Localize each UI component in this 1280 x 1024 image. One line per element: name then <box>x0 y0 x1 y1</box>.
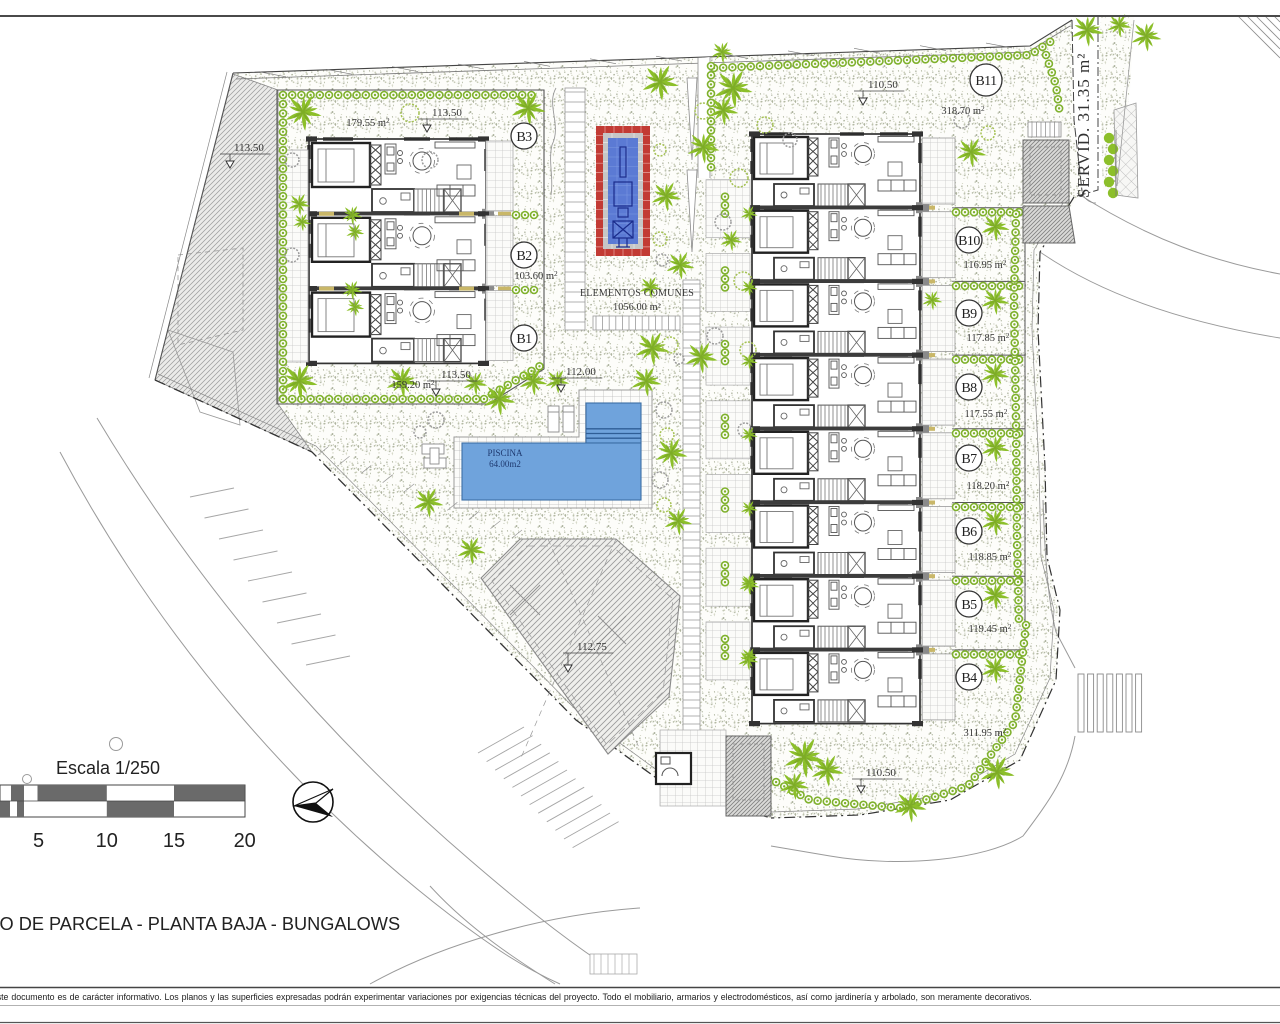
svg-text:B8: B8 <box>961 381 977 396</box>
svg-text:20: 20 <box>234 830 256 852</box>
svg-text:B7: B7 <box>961 452 977 467</box>
svg-text:B11: B11 <box>975 74 997 89</box>
svg-text:B2: B2 <box>516 249 532 264</box>
svg-text:179.55 m2: 179.55 m2 <box>346 116 390 129</box>
svg-text:B1: B1 <box>516 332 532 347</box>
svg-text:119.45 m2: 119.45 m2 <box>969 622 1012 635</box>
svg-text:110.50: 110.50 <box>868 79 898 91</box>
svg-text:113.50: 113.50 <box>234 142 264 154</box>
svg-text:ELEMENTOS COMUNES: ELEMENTOS COMUNES <box>580 288 694 299</box>
svg-text:5: 5 <box>33 830 44 852</box>
svg-text:15: 15 <box>163 830 185 852</box>
svg-text:B5: B5 <box>961 598 977 613</box>
svg-text:117.55 m2: 117.55 m2 <box>965 407 1008 420</box>
svg-text:B6: B6 <box>961 525 977 540</box>
svg-text:113.50: 113.50 <box>432 107 462 119</box>
svg-text:103.60 m2: 103.60 m2 <box>514 269 558 282</box>
svg-text:PISCINA: PISCINA <box>487 448 523 458</box>
svg-text:113.50: 113.50 <box>441 369 471 381</box>
svg-text:B10: B10 <box>958 234 980 249</box>
svg-text:10: 10 <box>96 830 118 852</box>
svg-text:64.00m2: 64.00m2 <box>489 459 521 469</box>
svg-text:159.20 m2: 159.20 m2 <box>391 378 435 391</box>
svg-text:B3: B3 <box>516 130 532 145</box>
svg-text:112.75: 112.75 <box>577 641 607 653</box>
svg-text:112.00: 112.00 <box>566 366 596 378</box>
svg-text:PLANO DE PARCELA - PLANTA BAJA: PLANO DE PARCELA - PLANTA BAJA - BUNGALO… <box>0 914 400 934</box>
svg-text:110.50: 110.50 <box>866 767 896 779</box>
svg-text:311.95 m2: 311.95 m2 <box>964 726 1007 739</box>
svg-text:1056.00 m²: 1056.00 m² <box>613 302 661 313</box>
svg-text:116.95 m2: 116.95 m2 <box>964 258 1007 271</box>
svg-text:B4: B4 <box>961 671 977 686</box>
svg-text:118.20 m2: 118.20 m2 <box>967 479 1010 492</box>
svg-text:318.70 m2: 318.70 m2 <box>941 104 985 117</box>
svg-text:Este documento es de carácter: Este documento es de carácter informativ… <box>0 992 1032 1002</box>
svg-text:117.85 m2: 117.85 m2 <box>967 331 1010 344</box>
svg-text:Escala 1/250: Escala 1/250 <box>56 758 160 778</box>
svg-text:118.85 m2: 118.85 m2 <box>969 550 1012 563</box>
svg-text:B9: B9 <box>961 307 977 322</box>
svg-text:SERVID. 31.35 m²: SERVID. 31.35 m² <box>1074 53 1093 198</box>
